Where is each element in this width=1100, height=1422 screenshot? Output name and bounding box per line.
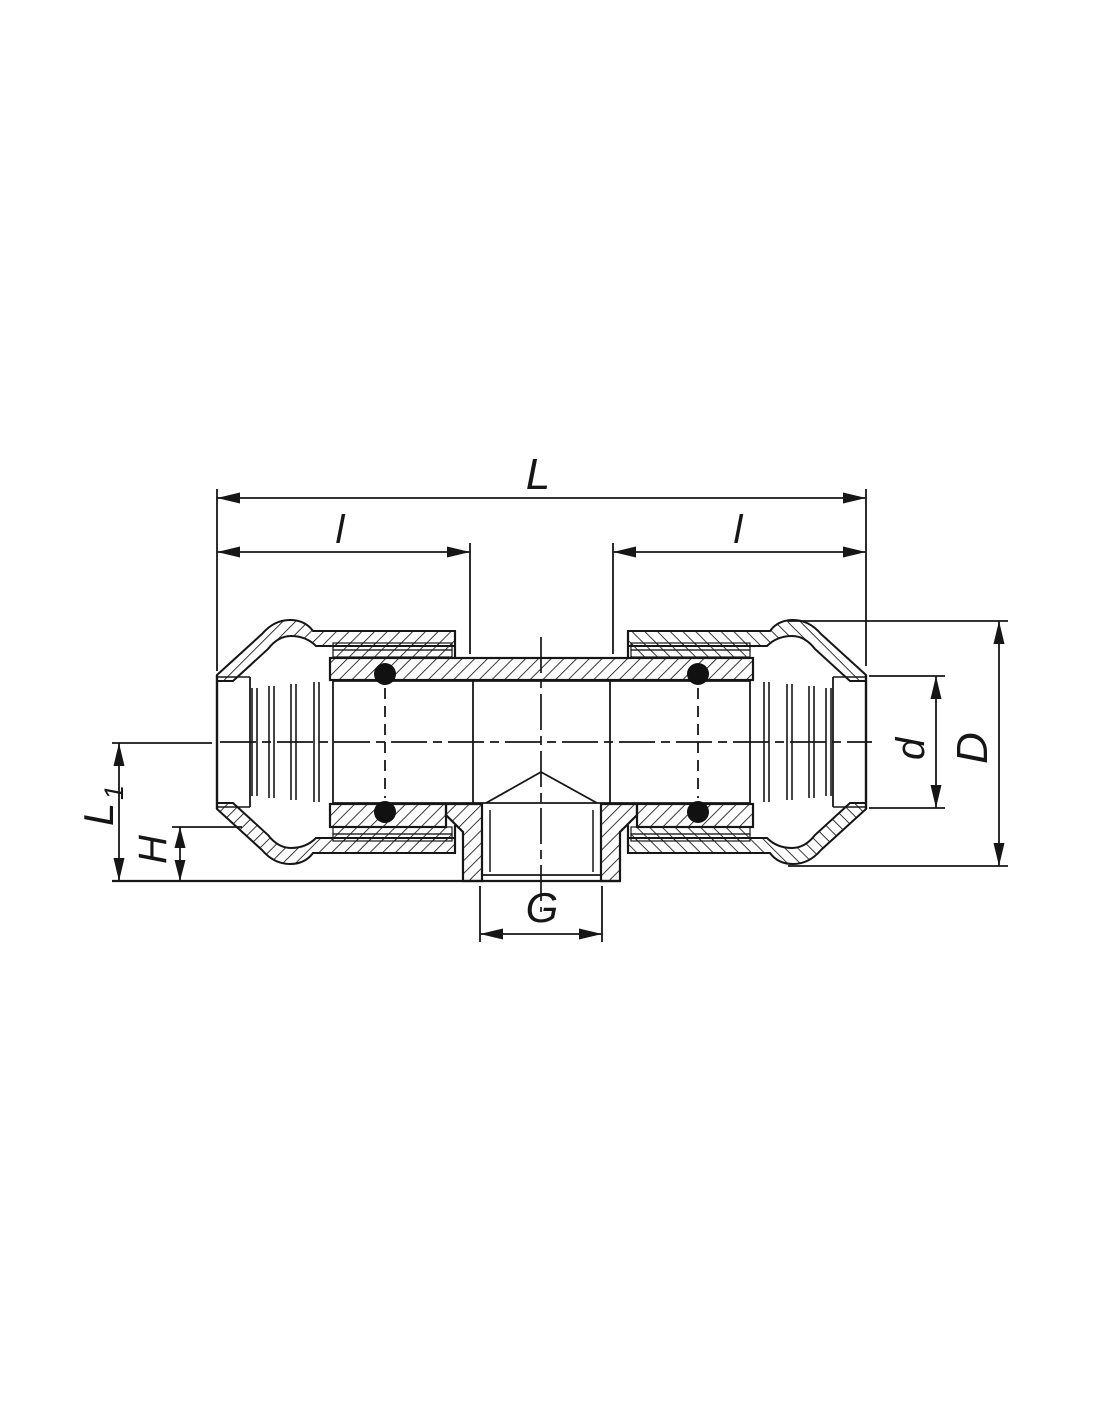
dimension-right-engagement: l bbox=[613, 508, 866, 558]
label-L: L bbox=[526, 450, 550, 499]
dimension-branch-thread: G bbox=[480, 884, 602, 940]
o-ring-left-top bbox=[374, 663, 396, 685]
label-L1: L bbox=[75, 803, 122, 826]
label-d: d bbox=[889, 736, 933, 760]
dimension-pipe-diameter: d bbox=[889, 676, 942, 808]
dimension-outer-diameter: D bbox=[948, 621, 1005, 866]
label-H: H bbox=[131, 835, 175, 864]
dimension-branch-height: L 1 bbox=[75, 743, 129, 881]
label-l-left: l bbox=[336, 508, 346, 552]
o-ring-right-bottom bbox=[687, 801, 709, 823]
dimension-overall-length: L bbox=[217, 450, 866, 504]
label-l-right: l bbox=[734, 508, 744, 552]
technical-drawing-tee-fitting: L l l L 1 H G bbox=[0, 0, 1100, 1422]
drawing-page: L l l L 1 H G bbox=[0, 0, 1100, 1422]
label-D: D bbox=[948, 732, 997, 764]
label-L1-subscript: 1 bbox=[99, 785, 129, 800]
o-ring-left-bottom bbox=[374, 801, 396, 823]
o-ring-right-top bbox=[687, 663, 709, 685]
label-G: G bbox=[526, 884, 559, 931]
dimension-stub-height: H bbox=[131, 827, 186, 881]
dimension-left-engagement: l bbox=[217, 508, 470, 558]
